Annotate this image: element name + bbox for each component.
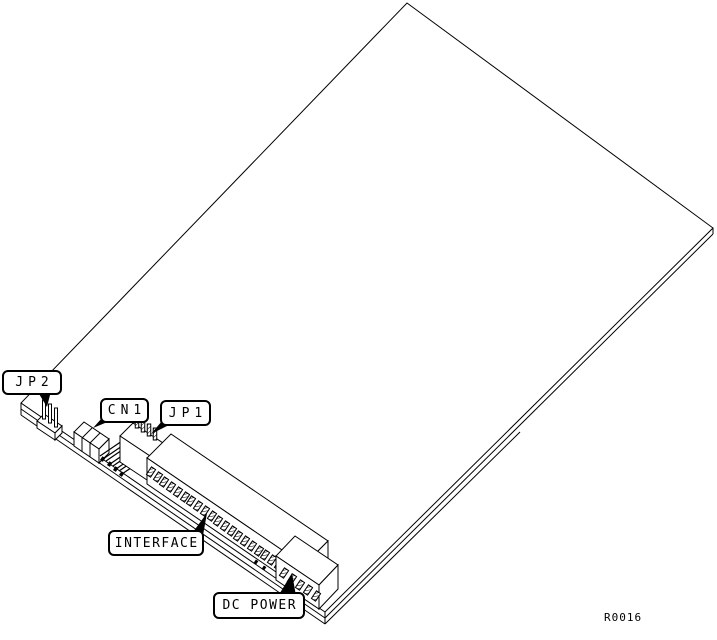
dc-power-label: DC POWER xyxy=(213,592,305,619)
reference-code: R0016 xyxy=(604,611,642,624)
board-top-face xyxy=(21,3,713,612)
jp2-label: JP2 xyxy=(2,370,62,395)
interface-label: INTERFACE xyxy=(108,530,204,556)
pcb-diagram-canvas: JP2 CN1 JP1 INTERFACE DC POWER R0016 xyxy=(0,0,717,640)
jp1-label: JP1 xyxy=(160,400,211,426)
cn1-label: CN1 xyxy=(100,398,149,423)
